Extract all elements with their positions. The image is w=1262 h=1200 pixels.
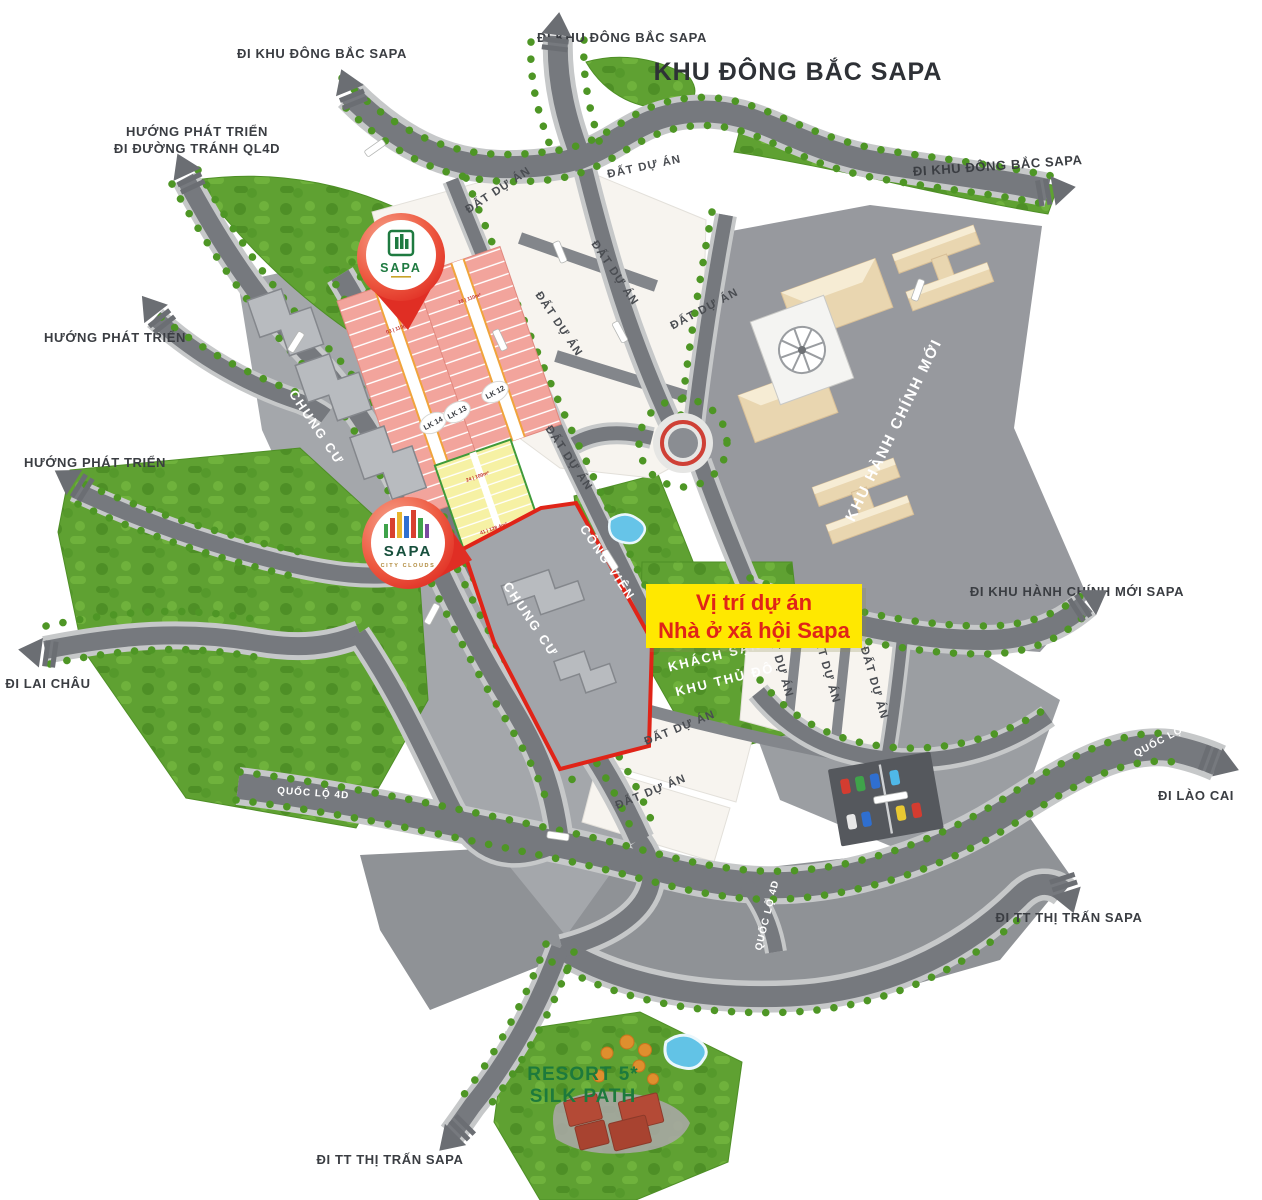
map-canvas: 03 | 110m² 19 | 110m² 24 | 100m² 41 | 12… [0, 0, 1262, 1200]
roundabout [653, 413, 713, 473]
road-label-huong-phat-trien-3: HƯỚNG PHÁT TRIỂN [24, 455, 166, 470]
callout-line2: Nhà ở xã hội Sapa [658, 618, 850, 643]
road-label-huong-phat-trien-ql4d-1: HƯỚNG PHÁT TRIỂN [126, 124, 268, 139]
road-label-huong-phat-trien-2: HƯỚNG PHÁT TRIỂN [44, 330, 186, 345]
road-label-di-duong-tranh-ql4d: ĐI ĐƯỜNG TRÁNH QL4D [114, 141, 280, 156]
resort-label-line1: RESORT 5* [527, 1064, 638, 1085]
road-label-di-tt-thi-tran-sapa-bottom: ĐI TT THỊ TRẤN SAPA [317, 1152, 464, 1167]
masterplan-map: { "page_title": "KHU ĐÔNG BẮC SAPA", "hi… [0, 0, 1262, 1200]
resort-pool [665, 1035, 706, 1068]
road-label-di-tt-thi-tran-sapa-right: ĐI TT THỊ TRẤN SAPA [996, 910, 1143, 925]
callout-line1: Vị trí dự án [696, 590, 812, 615]
pin-brand-text: SAPA [380, 261, 422, 275]
pin-tagline-text: CITY CLOUDS [381, 563, 436, 569]
resort-label-line2: SILK PATH [530, 1086, 636, 1107]
road-label-di-lao-cai: ĐI LÀO CAI [1158, 788, 1234, 803]
road-label-di-khu-dong-bac-sapa-left: ĐI KHU ĐÔNG BẮC SAPA [237, 46, 407, 61]
pin-brand-text: SAPA [384, 543, 433, 560]
page-title: KHU ĐÔNG BẮC SAPA [654, 56, 943, 86]
road-label-di-lai-chau: ĐI LAI CHÂU [5, 676, 90, 691]
pin-gold-rule [391, 276, 411, 278]
project-location-callout: Vị trí dự án Nhà ở xã hội Sapa [646, 584, 866, 652]
